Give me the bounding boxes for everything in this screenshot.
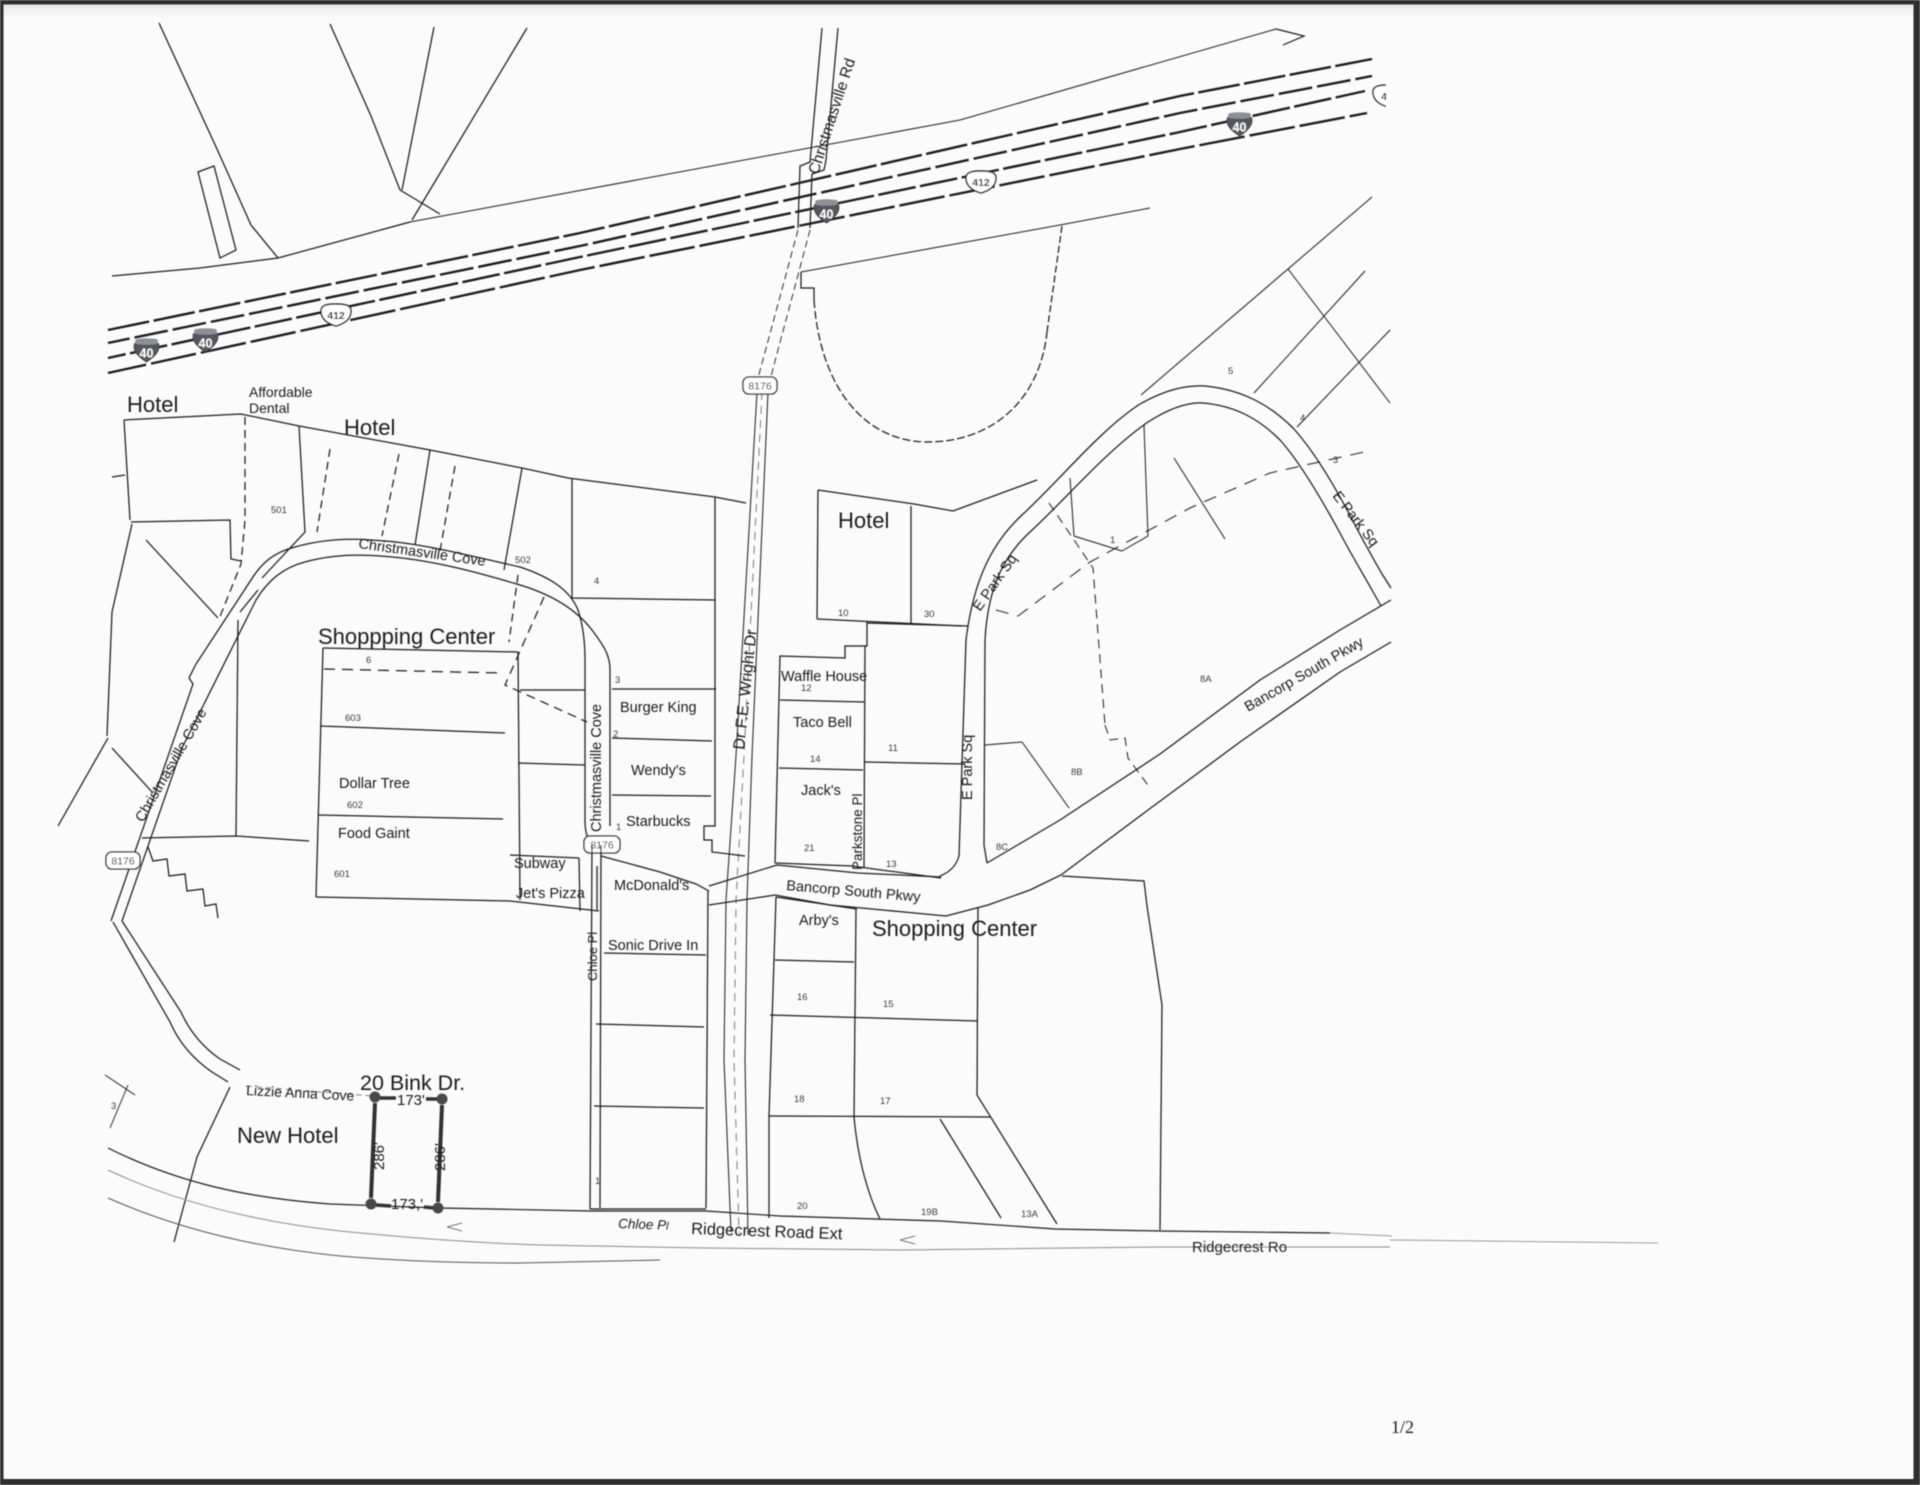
svg-text:601: 601	[334, 869, 350, 880]
svg-text:20: 20	[797, 1201, 808, 1212]
svg-text:15: 15	[883, 999, 894, 1010]
svg-text:Jet's Pizza: Jet's Pizza	[516, 886, 586, 902]
svg-text:14: 14	[810, 754, 821, 765]
svg-text:8176: 8176	[590, 840, 614, 852]
svg-text:Shopping Center: Shopping Center	[872, 916, 1037, 941]
svg-text:30: 30	[924, 609, 935, 620]
svg-text:502: 502	[515, 555, 531, 566]
svg-text:286': 286'	[371, 1142, 388, 1170]
svg-text:13: 13	[886, 859, 897, 870]
svg-text:Chloe Pl: Chloe Pl	[618, 1216, 670, 1233]
svg-text:Subway: Subway	[514, 856, 566, 872]
svg-text:4: 4	[1300, 413, 1305, 424]
svg-text:19B: 19B	[921, 1207, 938, 1218]
svg-text:40: 40	[820, 208, 834, 222]
svg-text:13A: 13A	[1021, 1209, 1039, 1220]
svg-text:Shoppping Center: Shoppping Center	[318, 624, 495, 649]
svg-text:Burger King: Burger King	[620, 700, 697, 716]
svg-text:Dollar Tree: Dollar Tree	[339, 776, 410, 792]
svg-text:Wendy's: Wendy's	[631, 763, 686, 779]
svg-text:5: 5	[1228, 366, 1233, 377]
svg-text:603: 603	[345, 713, 361, 724]
svg-text:1: 1	[1110, 535, 1115, 546]
svg-text:8B: 8B	[1071, 767, 1083, 778]
svg-text:Sonic Drive In: Sonic Drive In	[608, 938, 698, 954]
svg-text:3: 3	[1333, 455, 1338, 466]
svg-text:412: 412	[972, 177, 990, 189]
svg-text:Starbucks: Starbucks	[626, 814, 690, 830]
svg-text:New Hotel: New Hotel	[237, 1123, 338, 1148]
svg-text:Dental: Dental	[249, 400, 289, 416]
svg-text:Christmasville Cove: Christmasville Cove	[589, 704, 605, 832]
svg-text:2: 2	[613, 729, 618, 740]
svg-text:Taco Bell: Taco Bell	[793, 715, 852, 731]
svg-text:8176: 8176	[748, 381, 772, 393]
svg-text:10: 10	[838, 608, 849, 619]
svg-text:8C: 8C	[996, 842, 1008, 853]
svg-text:McDonald's: McDonald's	[614, 878, 689, 894]
svg-text:3: 3	[111, 1101, 116, 1112]
svg-text:40: 40	[199, 337, 213, 351]
svg-text:602: 602	[347, 800, 363, 811]
svg-text:3: 3	[615, 675, 620, 686]
svg-text:Affordable: Affordable	[249, 384, 313, 400]
svg-text:E Park Sq: E Park Sq	[960, 735, 976, 800]
svg-text:501: 501	[271, 505, 287, 516]
svg-text:Ridgecrest Ro: Ridgecrest Ro	[1192, 1239, 1287, 1256]
svg-text:173': 173'	[397, 1092, 425, 1109]
svg-text:17: 17	[880, 1096, 891, 1107]
svg-text:Hotel: Hotel	[127, 392, 178, 417]
svg-text:21: 21	[804, 843, 815, 854]
svg-text:11: 11	[888, 743, 898, 754]
svg-text:1: 1	[595, 1176, 600, 1187]
svg-text:Food Gaint: Food Gaint	[338, 826, 410, 842]
svg-text:Hotel: Hotel	[838, 508, 889, 533]
svg-text:18: 18	[794, 1094, 805, 1105]
svg-text:16: 16	[797, 992, 808, 1003]
svg-text:Jack's: Jack's	[801, 783, 841, 799]
svg-text:412: 412	[327, 310, 345, 322]
svg-text:286': 286'	[432, 1143, 449, 1171]
svg-text:Hotel: Hotel	[344, 415, 395, 440]
svg-text:Parkstone Pl: Parkstone Pl	[850, 793, 865, 870]
svg-text:Chloe Pl: Chloe Pl	[585, 932, 600, 981]
svg-text:Waffle House: Waffle House	[781, 669, 867, 685]
svg-text:4: 4	[594, 576, 599, 587]
svg-text:6: 6	[366, 655, 371, 666]
svg-text:8176: 8176	[111, 856, 135, 868]
svg-text:Arby's: Arby's	[799, 913, 839, 929]
svg-text:40: 40	[140, 347, 154, 361]
svg-text:8A: 8A	[1200, 674, 1212, 685]
svg-text:173,': 173,'	[391, 1196, 423, 1213]
svg-text:12: 12	[801, 683, 812, 694]
svg-text:1/2: 1/2	[1391, 1417, 1414, 1437]
svg-text:40: 40	[1233, 121, 1247, 135]
svg-text:1: 1	[616, 822, 621, 833]
